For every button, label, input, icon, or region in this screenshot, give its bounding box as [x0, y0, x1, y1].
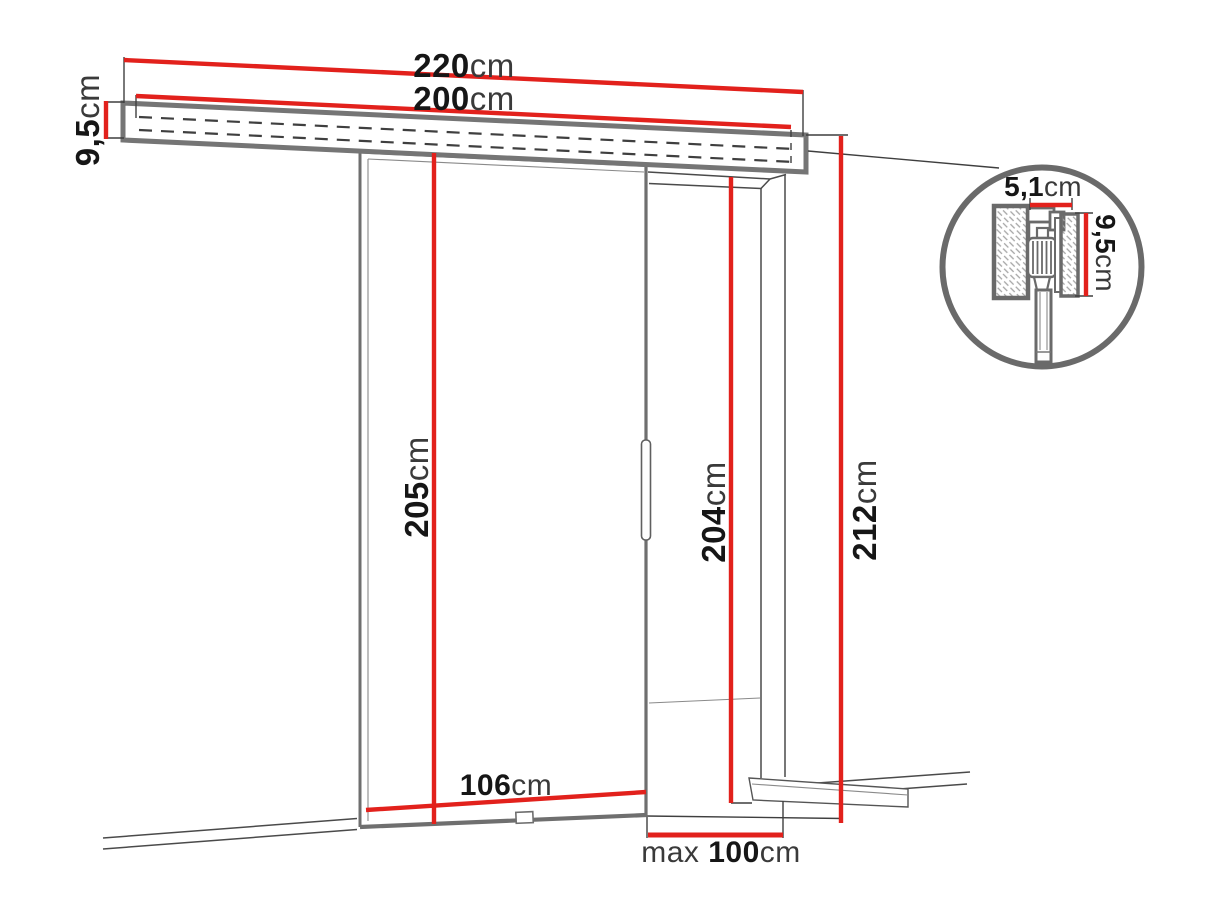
dim-label-205: 205cm: [398, 436, 435, 538]
dim-label-detail-51: 5,1cm: [1004, 171, 1082, 202]
frame-lintel-bottom-line: [649, 184, 761, 189]
sliding-door-dimension-diagram: 220cm 200cm 9,5cm 205cm 204cm 212cm 106c…: [0, 0, 1214, 910]
detail-leader-line: [808, 151, 999, 168]
mounting-strip-block: [1061, 214, 1078, 296]
dim-label-detail-95: 9,5cm: [1090, 214, 1121, 292]
dim-label-106: 106cm: [460, 769, 553, 802]
dimension-diagram-svg: 220cm 200cm 9,5cm 205cm 204cm 212cm 106c…: [0, 0, 1214, 910]
dim-label-220: 220cm: [413, 47, 515, 84]
wall-section-block: [994, 206, 1028, 298]
dim-label-max100: max 100cm: [641, 836, 801, 869]
dim-label-212: 212cm: [846, 459, 883, 561]
dim-label-95-left: 9,5cm: [69, 74, 106, 166]
dim-label-200: 200cm: [413, 80, 515, 117]
door-section-bar: [1036, 290, 1051, 362]
hanger-neck: [1034, 277, 1050, 290]
roller-axle: [1037, 228, 1048, 238]
frame-lintel-back-line: [770, 175, 786, 180]
frame-lintel-top-line: [648, 172, 770, 179]
dim-label-204: 204cm: [695, 461, 732, 563]
frame-lintel-corner-line: [761, 179, 770, 189]
floor-line-left-bottom: [103, 830, 357, 850]
floor-line-left-top: [103, 819, 357, 839]
ext-door-bottom-to-212: [646, 816, 843, 819]
opening-floor-line: [649, 698, 760, 703]
floor-guide: [516, 812, 533, 824]
detail-circle: 5,1cm 9,5cm: [943, 168, 1142, 367]
door-handle: [642, 440, 651, 540]
